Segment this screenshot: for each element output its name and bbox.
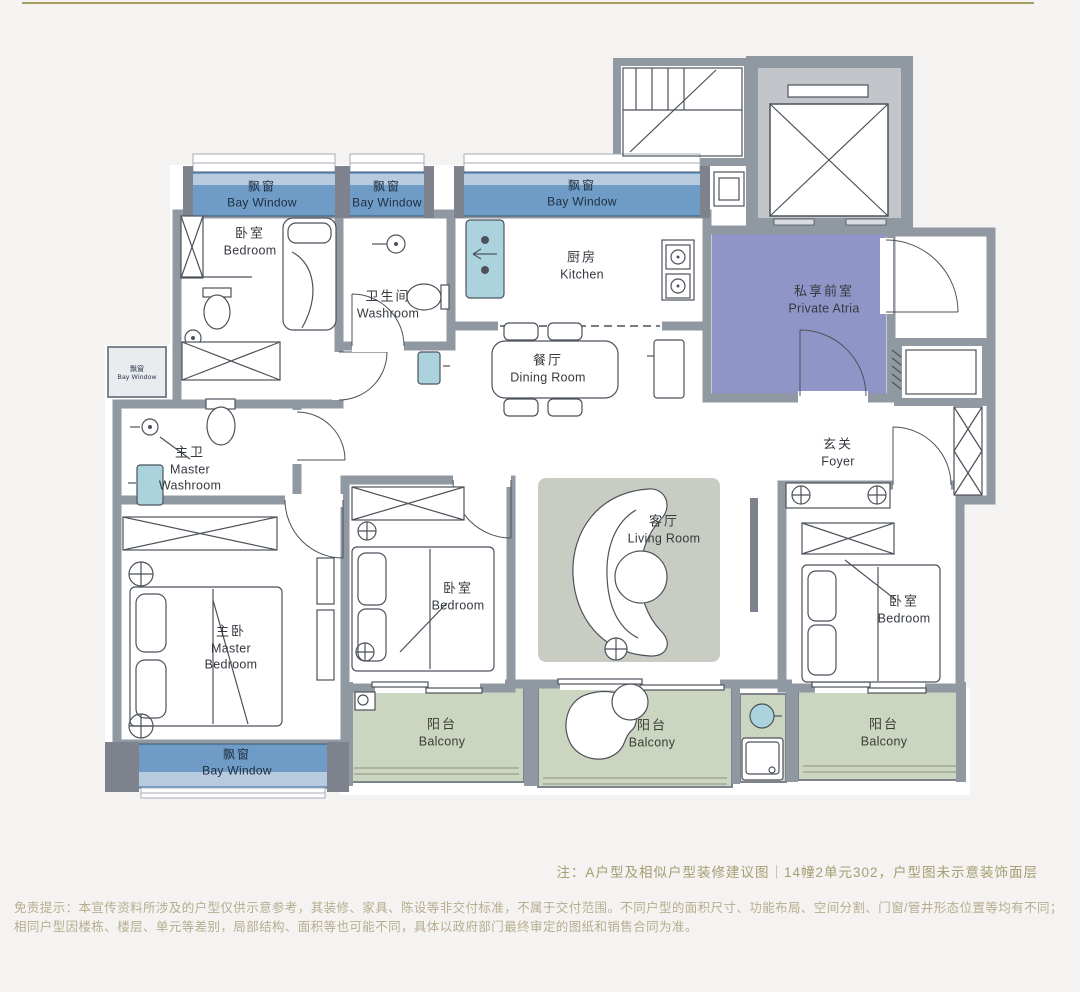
balcony-zones — [349, 687, 962, 787]
plan-note: 注：A户型及相似户型装修建议图｜14幢2单元302，户型图未示意装饰面层 — [556, 861, 1038, 881]
elevator-shaft — [770, 85, 888, 225]
legal-disclaimer: 免责提示：本宣传资料所涉及的户型仅供示意参考，其装修、家具、陈设等非交付标准，不… — [14, 899, 1066, 938]
private-atria-zone — [712, 234, 886, 394]
floor-plan-page: 飘窗 Bay Window 卧室 Bedroom 飘窗 Bay Window 卫… — [0, 0, 1080, 992]
floor-plan-drawing — [0, 0, 1080, 992]
entry-porch-box — [714, 172, 744, 206]
